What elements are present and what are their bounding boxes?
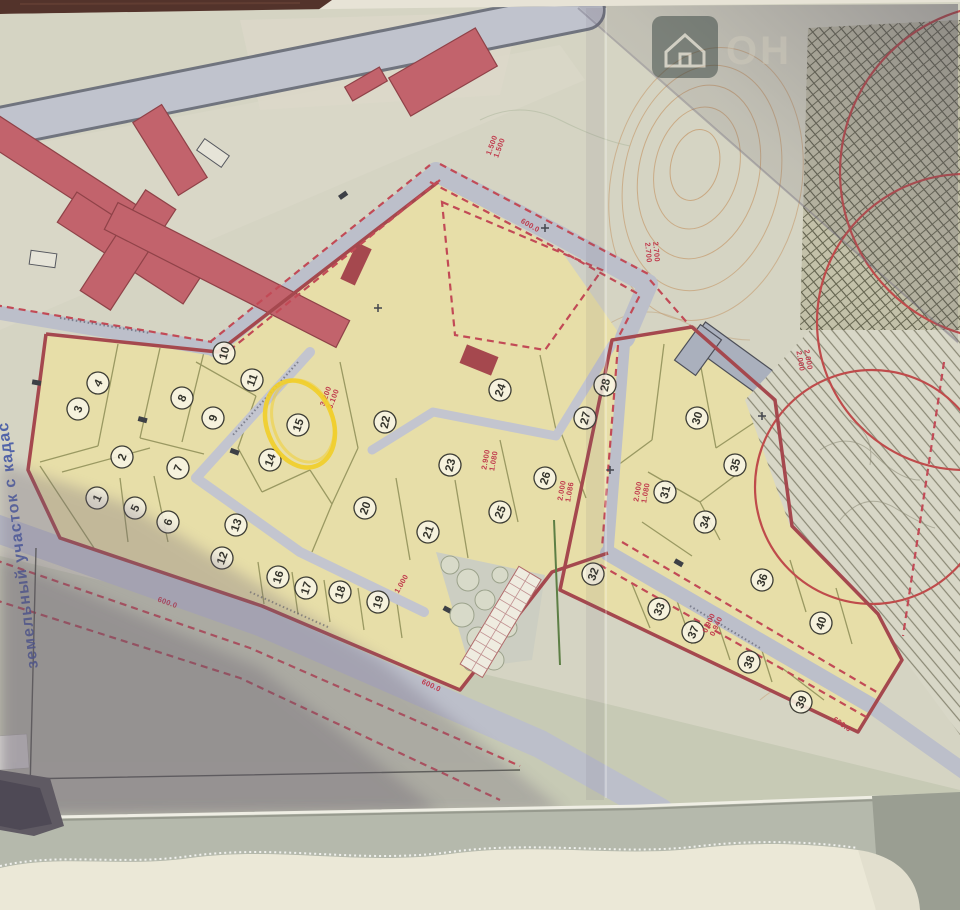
svg-text:2.0001.080: 2.0001.080 (631, 481, 651, 504)
svg-text:2.0001.086: 2.0001.086 (555, 480, 575, 503)
svg-text:2.0002.000: 2.0002.000 (794, 349, 814, 372)
fold-crease-vertical (586, 8, 604, 800)
dimension-label: 2.7002.700 (643, 241, 662, 263)
dimension-label: 2.0002.000 (794, 349, 814, 372)
watermark-text: ОН (726, 29, 792, 73)
dimension-label: 2.0001.086 (555, 480, 575, 503)
watermark-logo-tile (652, 16, 718, 78)
svg-text:2.7002.700: 2.7002.700 (643, 241, 662, 263)
table-texture-line (20, 3, 300, 4)
dimension-label: 2.0001.080 (631, 481, 651, 504)
building-outline (29, 250, 57, 267)
dimension-label: 2.9001.080 (479, 449, 499, 472)
svg-text:2.9001.080: 2.9001.080 (479, 449, 499, 472)
photo-of-cadastral-map: 1234567891011121314151617181920212223242… (0, 0, 960, 910)
